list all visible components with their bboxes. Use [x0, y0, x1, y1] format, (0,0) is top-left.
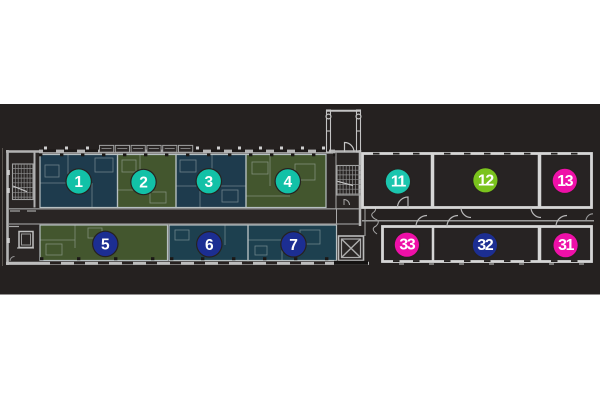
svg-text:33: 33	[399, 237, 415, 254]
svg-text:11: 11	[391, 174, 407, 191]
svg-text:13: 13	[557, 173, 573, 190]
svg-text:6: 6	[205, 237, 214, 254]
svg-text:5: 5	[101, 236, 110, 253]
svg-text:3: 3	[204, 174, 213, 191]
svg-text:4: 4	[283, 174, 292, 191]
svg-text:7: 7	[289, 237, 298, 254]
svg-text:1: 1	[74, 174, 83, 191]
svg-text:12: 12	[478, 172, 494, 189]
svg-text:31: 31	[558, 237, 574, 254]
svg-text:32: 32	[477, 237, 493, 254]
svg-text:2: 2	[139, 175, 148, 192]
